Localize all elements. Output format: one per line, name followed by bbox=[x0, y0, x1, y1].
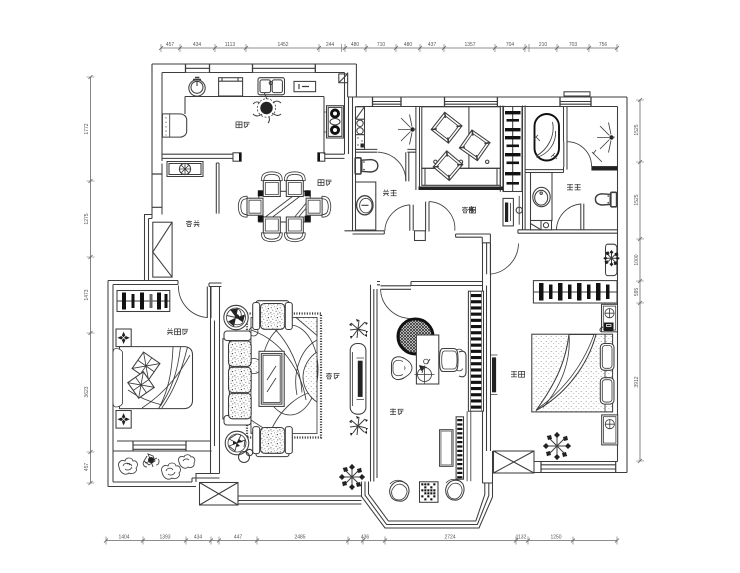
svg-text:710: 710 bbox=[377, 42, 386, 48]
svg-text:1473: 1473 bbox=[84, 289, 90, 300]
svg-text:436: 436 bbox=[361, 535, 370, 541]
svg-text:434: 434 bbox=[193, 42, 202, 48]
svg-text:3912: 3912 bbox=[634, 376, 640, 387]
svg-text:1452: 1452 bbox=[277, 42, 288, 48]
svg-text:1275: 1275 bbox=[84, 213, 90, 224]
svg-text:3623: 3623 bbox=[84, 386, 90, 397]
svg-text:1772: 1772 bbox=[84, 123, 90, 134]
svg-text:1525: 1525 bbox=[634, 124, 640, 135]
svg-text:1393: 1393 bbox=[159, 535, 170, 541]
svg-text:480: 480 bbox=[351, 42, 360, 48]
svg-text:595: 595 bbox=[634, 288, 640, 297]
svg-text:2724: 2724 bbox=[444, 535, 455, 541]
svg-text:1000: 1000 bbox=[634, 254, 640, 265]
svg-text:447: 447 bbox=[234, 535, 243, 541]
svg-text:480: 480 bbox=[404, 42, 413, 48]
svg-text:244: 244 bbox=[326, 42, 335, 48]
svg-text:457: 457 bbox=[166, 42, 175, 48]
svg-text:437: 437 bbox=[428, 42, 437, 48]
svg-text:1525: 1525 bbox=[634, 194, 640, 205]
svg-text:1113: 1113 bbox=[225, 42, 236, 48]
svg-text:2485: 2485 bbox=[294, 535, 305, 541]
svg-text:434: 434 bbox=[194, 535, 203, 541]
svg-text:703: 703 bbox=[569, 42, 578, 48]
svg-text:1132: 1132 bbox=[516, 535, 527, 541]
svg-text:1250: 1250 bbox=[550, 535, 561, 541]
svg-text:210: 210 bbox=[539, 42, 548, 48]
svg-text:1404: 1404 bbox=[118, 535, 129, 541]
svg-text:704: 704 bbox=[506, 42, 515, 48]
svg-text:1357: 1357 bbox=[464, 42, 475, 48]
svg-text:457: 457 bbox=[84, 463, 90, 472]
svg-text:756: 756 bbox=[599, 42, 608, 48]
